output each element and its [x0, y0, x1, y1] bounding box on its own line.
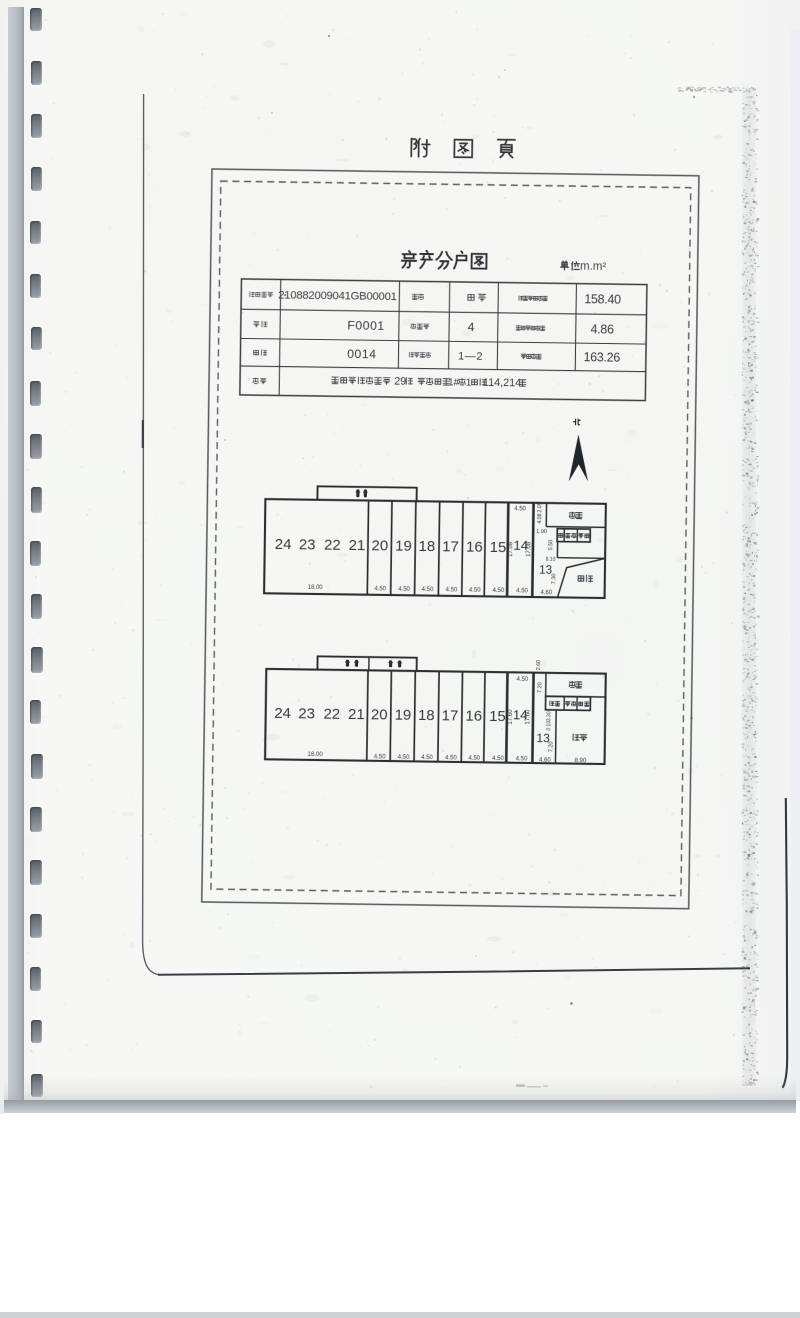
svg-text:5.50: 5.50: [548, 540, 554, 551]
svg-text:17: 17: [442, 538, 459, 555]
svg-text:7.20: 7.20: [537, 682, 543, 693]
svg-text:4.08: 4.08: [537, 513, 543, 523]
svg-text:4.60: 4.60: [539, 758, 551, 764]
svg-text:15: 15: [490, 539, 507, 556]
svg-text:16: 16: [466, 538, 483, 555]
svg-text:4.50: 4.50: [422, 587, 434, 593]
svg-text:13: 13: [539, 565, 552, 577]
svg-text:2.60: 2.60: [536, 660, 542, 670]
svg-text:17.60: 17.60: [508, 709, 514, 725]
svg-text:18: 18: [418, 707, 435, 724]
svg-text:114,214: 114,214: [483, 377, 521, 390]
svg-text:158.40: 158.40: [584, 292, 621, 307]
svg-text:18: 18: [418, 538, 435, 555]
svg-text:20: 20: [371, 706, 388, 723]
svg-text:24: 24: [275, 536, 292, 553]
svg-text:4.50: 4.50: [517, 677, 529, 683]
svg-text:4.50: 4.50: [516, 588, 528, 594]
svg-text:4.50: 4.50: [493, 588, 505, 594]
svg-text:29: 29: [394, 375, 406, 387]
svg-text:17.08: 17.08: [508, 541, 514, 557]
svg-text:4.50: 4.50: [445, 755, 457, 761]
svg-text:22: 22: [323, 706, 340, 723]
svg-text:22: 22: [324, 537, 341, 554]
svg-text:8.90: 8.90: [574, 758, 586, 764]
svg-text:4.50: 4.50: [516, 756, 528, 762]
svg-text:19: 19: [395, 537, 412, 554]
svg-text:4.50: 4.50: [398, 586, 410, 592]
svg-text:4.50: 4.50: [468, 756, 480, 762]
svg-text:21: 21: [348, 537, 365, 554]
svg-text:17.60: 17.60: [525, 709, 531, 725]
svg-text:2.05: 2.05: [537, 502, 543, 512]
svg-text:3.30: 3.30: [546, 711, 552, 721]
svg-text:4.60: 4.60: [540, 590, 552, 596]
svg-text:7.30: 7.30: [551, 573, 557, 584]
svg-text:23: 23: [298, 705, 315, 722]
svg-text:4.50: 4.50: [374, 586, 386, 592]
svg-text:4.50: 4.50: [421, 755, 433, 761]
svg-text:1: 1: [466, 377, 472, 388]
svg-text:0.10: 0.10: [546, 721, 552, 731]
svg-text:4.50: 4.50: [374, 754, 386, 760]
svg-text:1#: 1#: [448, 377, 460, 388]
svg-text:23: 23: [299, 536, 316, 553]
svg-text:18.00: 18.00: [308, 752, 324, 758]
svg-text:1.90: 1.90: [536, 529, 547, 535]
svg-text:m.m²: m.m²: [580, 261, 607, 273]
svg-text:18.00: 18.00: [308, 585, 324, 591]
svg-text:8.10: 8.10: [546, 557, 556, 563]
svg-text:4.50: 4.50: [514, 506, 526, 512]
svg-text:163.26: 163.26: [583, 350, 620, 365]
svg-text:4.86: 4.86: [590, 322, 614, 336]
svg-text:0014: 0014: [347, 347, 377, 361]
svg-text:7.20: 7.20: [548, 741, 554, 752]
svg-text:4.50: 4.50: [469, 587, 481, 593]
svg-text:16: 16: [465, 707, 482, 724]
svg-text:21: 21: [348, 706, 365, 723]
svg-text:1—2: 1—2: [458, 350, 483, 362]
svg-text:17: 17: [442, 707, 459, 724]
svg-text:4.50: 4.50: [398, 755, 410, 761]
svg-text:17.08: 17.08: [526, 541, 532, 557]
svg-text:24: 24: [274, 705, 291, 722]
svg-text:4.50: 4.50: [492, 756, 504, 762]
svg-text:F0001: F0001: [347, 319, 385, 334]
svg-text:20: 20: [371, 537, 388, 554]
svg-text:19: 19: [394, 707, 411, 724]
svg-text:210882009041GB00001: 210882009041GB00001: [278, 290, 397, 304]
svg-text:4.50: 4.50: [446, 587, 458, 593]
svg-text:4: 4: [468, 320, 475, 334]
svg-text:15: 15: [489, 708, 506, 725]
